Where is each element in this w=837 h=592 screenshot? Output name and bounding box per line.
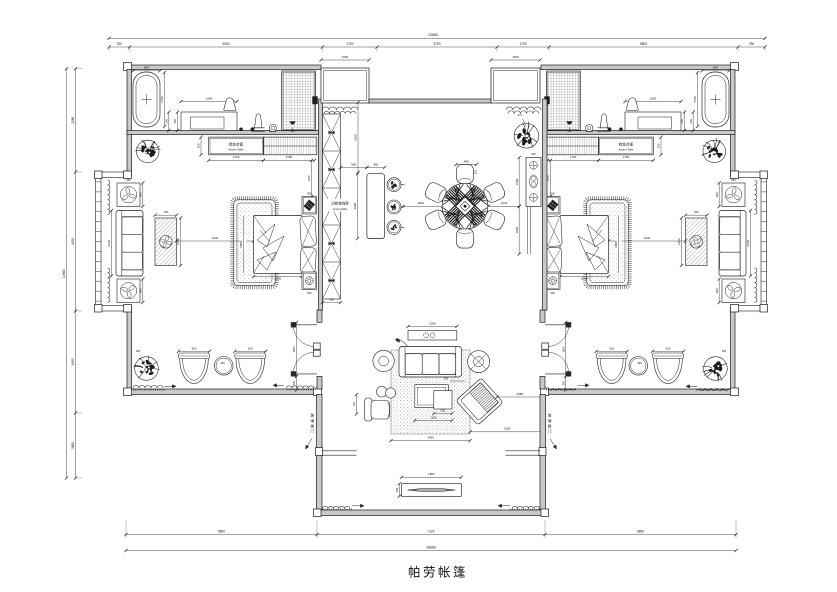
svg-text:1350: 1350	[176, 238, 180, 245]
svg-text:900: 900	[351, 162, 356, 166]
svg-text:1700: 1700	[623, 155, 630, 159]
svg-text:1814: 1814	[418, 201, 425, 205]
svg-text:1380: 1380	[516, 392, 523, 396]
svg-text:2200: 2200	[354, 134, 358, 141]
svg-text:650: 650	[731, 178, 736, 182]
svg-text:1700: 1700	[233, 155, 240, 159]
svg-text:2430: 2430	[644, 236, 651, 240]
svg-text:1500: 1500	[650, 96, 657, 100]
svg-text:1700: 1700	[346, 42, 353, 46]
svg-text:520: 520	[441, 409, 446, 413]
svg-text:梳妆台面: 梳妆台面	[229, 141, 244, 146]
svg-text:488: 488	[464, 159, 469, 163]
svg-text:梳妆台面: 梳妆台面	[619, 141, 634, 146]
svg-text:2400: 2400	[427, 435, 434, 439]
svg-text:500: 500	[329, 298, 334, 302]
svg-text:720: 720	[352, 401, 356, 406]
svg-text:6000: 6000	[222, 42, 229, 46]
svg-text:移: 移	[311, 423, 315, 428]
svg-text:2100: 2100	[746, 240, 750, 247]
svg-text:璃: 璃	[548, 418, 552, 423]
svg-text:Accent Table: Accent Table	[619, 148, 634, 152]
svg-text:365: 365	[136, 349, 141, 353]
svg-text:1260: 1260	[430, 416, 436, 420]
svg-text:300: 300	[173, 118, 177, 123]
svg-text:3720: 3720	[433, 42, 440, 46]
svg-text:600: 600	[139, 288, 143, 293]
svg-text:1800: 1800	[428, 472, 435, 476]
svg-text:Accent Table: Accent Table	[229, 148, 244, 152]
svg-text:800: 800	[713, 66, 718, 70]
svg-text:300: 300	[680, 118, 684, 123]
svg-text:玻: 玻	[548, 413, 552, 418]
svg-text:23680: 23680	[428, 33, 438, 37]
svg-text:1700: 1700	[519, 42, 526, 46]
svg-text:812: 812	[475, 169, 478, 174]
svg-text:910: 910	[609, 346, 614, 350]
svg-text:1600: 1600	[515, 178, 519, 185]
svg-text:365: 365	[722, 349, 727, 353]
svg-text:1500: 1500	[512, 55, 519, 59]
svg-text:2000: 2000	[274, 277, 281, 281]
svg-text:1750: 1750	[693, 96, 697, 103]
svg-text:650: 650	[126, 178, 131, 182]
svg-text:2100: 2100	[107, 240, 111, 247]
svg-text:910: 910	[192, 346, 197, 350]
svg-text:500: 500	[551, 192, 556, 196]
svg-text:800: 800	[144, 66, 149, 70]
svg-text:5800: 5800	[640, 42, 647, 46]
svg-text:910: 910	[248, 346, 253, 350]
svg-text:500: 500	[561, 380, 565, 385]
svg-text:500: 500	[307, 192, 312, 196]
svg-text:1800: 1800	[292, 346, 296, 353]
svg-text:2280: 2280	[71, 117, 75, 124]
svg-text:780: 780	[749, 42, 755, 46]
svg-text:1500: 1500	[206, 96, 213, 100]
svg-text:1600: 1600	[515, 227, 519, 234]
svg-text:600: 600	[689, 118, 693, 123]
svg-text:7120: 7120	[427, 529, 434, 533]
svg-text:600: 600	[165, 118, 169, 123]
svg-text:1800: 1800	[239, 241, 243, 248]
svg-text:帕劳帐篷: 帕劳帐篷	[408, 565, 468, 580]
svg-text:1234: 1234	[501, 201, 508, 205]
svg-text:门: 门	[311, 429, 315, 434]
svg-text:500: 500	[551, 291, 556, 295]
svg-text:1500: 1500	[429, 321, 436, 325]
svg-text:500: 500	[657, 143, 661, 148]
svg-text:10660: 10660	[62, 269, 66, 279]
svg-text:移: 移	[548, 423, 552, 428]
svg-text:玻: 玻	[311, 413, 315, 418]
svg-text:3600: 3600	[71, 442, 75, 449]
svg-text:2000: 2000	[581, 277, 588, 281]
svg-text:1700: 1700	[570, 155, 577, 159]
svg-text:3450: 3450	[71, 358, 75, 365]
svg-text:500: 500	[197, 143, 201, 148]
svg-text:门: 门	[548, 429, 552, 434]
svg-text:1800: 1800	[561, 346, 565, 353]
svg-text:520: 520	[444, 377, 449, 381]
svg-text:1700: 1700	[286, 155, 293, 159]
svg-text:2000: 2000	[353, 202, 357, 209]
svg-text:2430: 2430	[212, 236, 219, 240]
svg-text:600: 600	[715, 192, 719, 197]
svg-text:边柜装饰架: 边柜装饰架	[331, 201, 349, 206]
svg-text:1800: 1800	[614, 241, 618, 248]
svg-text:325: 325	[637, 361, 642, 365]
svg-text:780: 780	[116, 42, 122, 46]
svg-text:700: 700	[163, 210, 168, 214]
svg-text:500: 500	[531, 152, 536, 156]
svg-text:5800: 5800	[637, 529, 644, 533]
svg-text:371: 371	[518, 113, 523, 117]
svg-text:4420: 4420	[71, 238, 75, 245]
svg-text:1370: 1370	[307, 175, 311, 182]
svg-text:500: 500	[292, 380, 296, 385]
svg-text:910: 910	[666, 346, 671, 350]
svg-text:950: 950	[373, 162, 378, 166]
svg-text:600: 600	[715, 288, 719, 293]
svg-text:1350: 1350	[677, 238, 681, 245]
svg-text:2190: 2190	[504, 427, 511, 431]
svg-text:Accent Table: Accent Table	[333, 208, 348, 211]
svg-text:5800: 5800	[218, 529, 225, 533]
svg-text:600: 600	[139, 192, 143, 197]
svg-text:700: 700	[694, 210, 699, 214]
svg-text:325: 325	[220, 361, 225, 365]
svg-text:500: 500	[307, 291, 312, 295]
svg-text:璃: 璃	[311, 418, 315, 423]
svg-text:18660: 18660	[426, 545, 436, 549]
svg-text:1500: 1500	[342, 55, 349, 59]
svg-text:1750: 1750	[160, 96, 164, 103]
svg-text:350: 350	[395, 487, 399, 492]
